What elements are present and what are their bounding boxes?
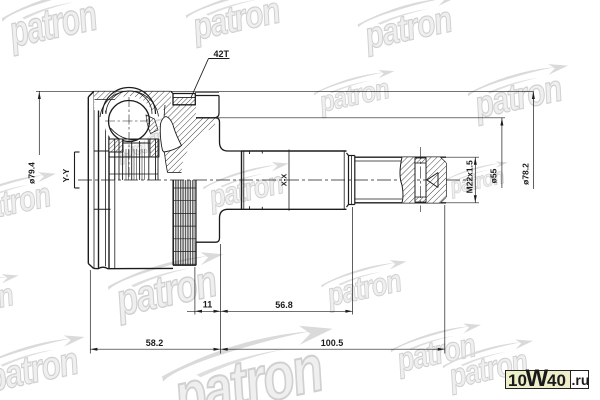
svg-text:X-X: X-X — [280, 174, 289, 187]
svg-text:ø78.2: ø78.2 — [521, 163, 531, 185]
svg-text:58.2: 58.2 — [146, 338, 164, 348]
svg-text:11: 11 — [203, 300, 213, 310]
svg-text:patron: patron — [323, 264, 404, 314]
svg-text:42T: 42T — [214, 49, 230, 59]
svg-text:M22x1.5: M22x1.5 — [464, 160, 474, 193]
svg-text:ø55: ø55 — [489, 168, 499, 183]
svg-text:100.5: 100.5 — [321, 338, 344, 348]
svg-text:patron: patron — [205, 166, 286, 216]
svg-text:patron: patron — [111, 257, 220, 326]
svg-text:ø79.4: ø79.4 — [27, 162, 37, 184]
svg-text:patron: patron — [0, 338, 82, 400]
svg-text:patron: patron — [0, 278, 16, 328]
svg-text:Y-Y: Y-Y — [61, 168, 71, 182]
svg-text:56.8: 56.8 — [275, 300, 293, 310]
svg-text:patron: patron — [4, 0, 101, 56]
svg-text:patron: patron — [360, 0, 455, 58]
